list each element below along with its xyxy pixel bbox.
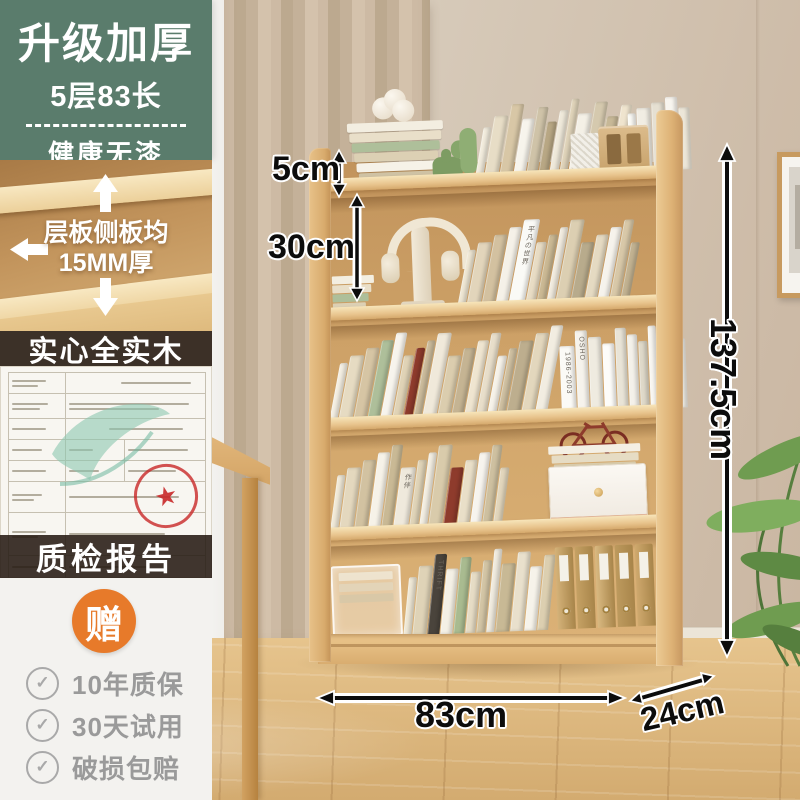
solid-wood-banner: 实心全实木 (0, 331, 212, 366)
promo-badge: 升级加厚 5层83长 健康无漆 (0, 0, 212, 160)
benefits-list: ✓ 10年质保 ✓ 30天试用 ✓ 破损包赔 (26, 668, 184, 782)
bookshelf-left-panel (309, 148, 331, 662)
benefit-item: ✓ 10年质保 (26, 668, 184, 698)
promo-title: 升级加厚 (18, 10, 194, 71)
dim-shelf-height: 30cm (268, 228, 355, 267)
shelf-base-groove (318, 644, 674, 647)
desk-leg (242, 478, 258, 800)
report-banner: 质检报告 (0, 535, 212, 578)
dim-height: 137.5cm (702, 318, 744, 460)
thickness-note-line2: 15MM厚 (0, 243, 212, 279)
dim-width: 83cm (415, 694, 507, 736)
benefit-label: 破损包赔 (72, 749, 180, 786)
inspection-report: ★ 质检报告 (0, 366, 212, 578)
bookshelf-right-panel (656, 110, 683, 666)
check-icon: ✓ (26, 667, 59, 700)
check-icon: ✓ (26, 709, 59, 742)
shelf-base (318, 634, 674, 664)
picture-frame (777, 152, 800, 298)
frame-art (789, 167, 800, 273)
thickness-photo: 层板侧板均 15MM厚 (0, 160, 212, 331)
benefit-label: 10年质保 (72, 665, 184, 702)
check-icon: ✓ (26, 751, 59, 784)
sidebar-bottom: 赠 ✓ 10年质保 ✓ 30天试用 ✓ 破损包赔 (0, 578, 212, 800)
dashed-divider (26, 124, 186, 127)
benefit-label: 30天试用 (72, 707, 184, 744)
gift-badge: 赠 (72, 589, 136, 653)
promo-subtitle: 5层83长 (50, 73, 161, 115)
benefit-item: ✓ 破损包赔 (26, 752, 184, 782)
dim-top-gap: 5cm (272, 150, 340, 189)
benefit-item: ✓ 30天试用 (26, 710, 184, 740)
info-sidebar: 升级加厚 5层83长 健康无漆 层板侧板均 15MM厚 实心全实木 (0, 0, 212, 800)
